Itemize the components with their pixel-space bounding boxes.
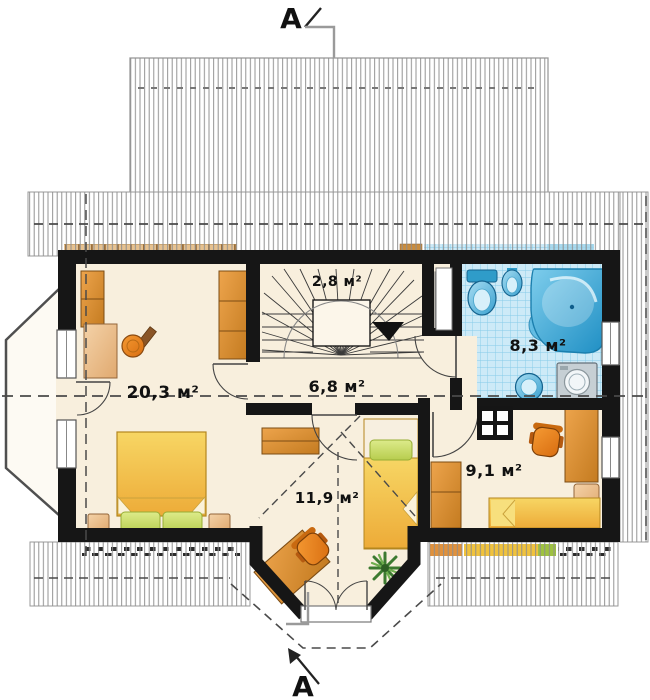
wardrobe — [431, 462, 461, 528]
section-cut-tick — [305, 8, 321, 27]
wall-bathroom-west-lower — [450, 378, 462, 410]
duct-shaft — [436, 268, 452, 330]
section-letter-bottom: A — [292, 670, 314, 700]
chimney — [477, 406, 513, 440]
toilet — [467, 270, 497, 315]
washing-machine — [557, 363, 597, 399]
room-label-bedroom-right: 9,1 м² — [466, 461, 523, 480]
wall-right-upper — [602, 250, 620, 322]
stool — [122, 335, 144, 357]
stair-well-opening — [313, 300, 370, 346]
room-label-staircase: 2,8 м² — [312, 274, 362, 290]
pillow — [370, 440, 412, 460]
bottom-right-eaves-roof — [428, 542, 618, 606]
wall-stair-east — [422, 264, 434, 336]
bottom-left-eaves-roof — [30, 542, 250, 606]
window-left-2 — [57, 420, 76, 468]
window-right-1 — [602, 322, 619, 365]
dressing-table — [84, 324, 117, 378]
room-label-hallway: 6,8 м² — [309, 377, 366, 396]
section-marker-top: A — [280, 2, 334, 58]
wall-bottom-right — [414, 528, 620, 542]
drain — [570, 305, 574, 309]
wall-bottom-left — [58, 528, 262, 542]
window-right-2 — [602, 437, 619, 478]
desk — [565, 408, 598, 482]
single-bed — [489, 498, 600, 528]
side-dormer-outline — [6, 288, 60, 516]
wall-left-upper — [58, 250, 76, 330]
balcony-door-gap-floor — [56, 376, 78, 422]
floor-plan: 20,3 м² 2,8 м² 6,8 м² 8,3 м² 9,1 м² 11,9… — [0, 0, 650, 700]
room-label-bathroom: 8,3 м² — [510, 336, 567, 355]
room-label-bedroom-bay: 11,9 м² — [295, 489, 360, 507]
right-eaves-roof — [620, 192, 648, 542]
room-label-bedroom-left: 20,3 м² — [127, 383, 200, 403]
wall-stair-west — [246, 264, 260, 362]
floor-plan-page: 20,3 м² 2,8 м² 6,8 м² 8,3 м² 9,1 м² 11,9… — [0, 0, 650, 700]
wall-bedroom-right-west — [418, 398, 430, 528]
wall-top — [58, 250, 620, 264]
section-cut-step — [305, 27, 334, 58]
window-left-1 — [57, 330, 76, 378]
section-letter-top: A — [280, 2, 302, 35]
wardrobe — [219, 271, 247, 359]
wall-bay-room-north-left — [246, 403, 312, 415]
